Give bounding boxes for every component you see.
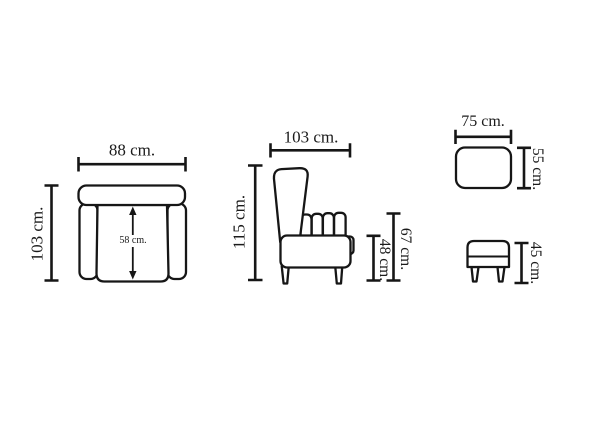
dim-line-75 bbox=[456, 130, 512, 144]
dim-label-seat-height: 48 cm. bbox=[376, 239, 392, 281]
dim-label-seat-width: 58 cm. bbox=[117, 235, 148, 247]
ottoman-right-leg bbox=[498, 267, 505, 282]
armchair-top-backrest bbox=[79, 186, 186, 206]
armchair-top-right-arm bbox=[168, 204, 187, 280]
dim-label-armchair-depth: 103 cm. bbox=[29, 207, 46, 262]
dim-line-115 bbox=[248, 166, 263, 281]
armchair-top-view-shape bbox=[79, 186, 187, 282]
ottoman-top-outline bbox=[456, 148, 511, 189]
dim-label-side-height: 115 cm. bbox=[231, 195, 248, 249]
armchair-side-view-shape bbox=[274, 168, 354, 283]
armchair-top-left-arm bbox=[80, 204, 98, 280]
ottoman-left-leg bbox=[472, 267, 479, 282]
diagram-linework bbox=[0, 0, 600, 425]
armchair-side-seat-base bbox=[281, 236, 351, 268]
ottoman-top-view-shape bbox=[456, 148, 511, 189]
furniture-dimension-diagram: 88 cm. 103 cm. 58 cm. 103 cm. 115 cm. 48… bbox=[0, 0, 600, 425]
dim-label-arm-height: 67 cm. bbox=[397, 228, 413, 270]
dim-label-side-depth: 103 cm. bbox=[284, 129, 339, 146]
dim-label-ottoman-width: 75 cm. bbox=[461, 114, 505, 130]
ottoman-side-view-shape bbox=[468, 241, 510, 282]
ottoman-side-body bbox=[468, 241, 510, 267]
dim-label-ottoman-depth: 55 cm. bbox=[529, 148, 545, 190]
dim-label-ottoman-height: 45 cm. bbox=[527, 242, 543, 284]
dim-line-103-left bbox=[45, 186, 59, 281]
dim-label-armchair-width: 88 cm. bbox=[109, 142, 155, 159]
